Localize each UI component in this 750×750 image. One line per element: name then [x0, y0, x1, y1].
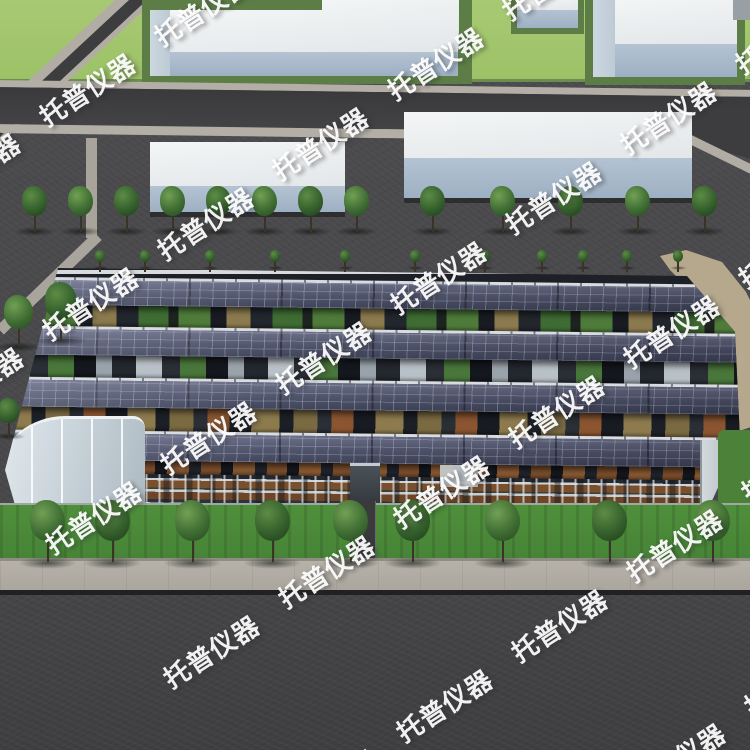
tree [95, 500, 130, 568]
tree-canopy [485, 500, 520, 541]
tree-canopy [30, 500, 65, 541]
tree-trunk [192, 539, 194, 562]
tree [537, 250, 547, 270]
tree [592, 500, 627, 568]
tree-canopy [0, 398, 19, 423]
tree-trunk [80, 214, 82, 232]
tree [692, 186, 717, 235]
tree [270, 250, 280, 270]
tree-canopy [95, 500, 130, 541]
tree-trunk [412, 539, 414, 562]
tree-canopy [175, 500, 210, 541]
tree-canopy [22, 186, 47, 216]
tree [255, 500, 290, 568]
tree-trunk [637, 214, 639, 232]
tree-canopy [4, 295, 33, 329]
tree-trunk [350, 539, 352, 562]
tree [160, 186, 185, 235]
tree-canopy [206, 186, 231, 216]
tree [95, 250, 105, 270]
tree-trunk [34, 214, 36, 232]
tree [45, 282, 77, 345]
tree-canopy [410, 250, 420, 262]
tree [344, 186, 369, 235]
tree-trunk [112, 539, 114, 562]
tree-trunk [8, 421, 10, 438]
tree [673, 250, 683, 270]
tree [114, 186, 139, 235]
tree [68, 186, 93, 235]
tree-trunk [60, 318, 62, 340]
tree [395, 500, 430, 568]
tree-trunk [356, 214, 358, 232]
tree-canopy [95, 250, 105, 262]
tree [205, 250, 215, 270]
tree-canopy [45, 282, 77, 320]
tree [30, 500, 65, 568]
tree-shadow [0, 433, 26, 440]
tree [420, 186, 445, 235]
tree-trunk [218, 214, 220, 232]
tree-trunk [432, 214, 434, 232]
tree-canopy [395, 500, 430, 541]
tree-canopy [68, 186, 93, 216]
tree-trunk [47, 539, 49, 562]
tree-canopy [114, 186, 139, 216]
tree [252, 186, 277, 235]
tree-trunk [570, 214, 572, 232]
tree-canopy [255, 500, 290, 541]
tree-canopy [625, 186, 650, 216]
tree [206, 186, 231, 235]
tree [333, 500, 368, 568]
tree-canopy [205, 250, 215, 262]
tree-canopy [420, 186, 445, 216]
tree [140, 250, 150, 270]
tree-canopy [480, 250, 490, 262]
tree-canopy [333, 500, 368, 541]
tree-trunk [712, 539, 714, 562]
tree [410, 250, 420, 270]
tree-canopy [695, 500, 730, 541]
tree-trunk [310, 214, 312, 232]
tree-trunk [272, 539, 274, 562]
tree [4, 295, 33, 351]
tree-trunk [502, 214, 504, 232]
tree [695, 500, 730, 568]
tree [340, 250, 350, 270]
tree-canopy [692, 186, 717, 216]
tree-canopy [252, 186, 277, 216]
tree-canopy [344, 186, 369, 216]
rendered-scene: 托普仪器托普仪器托普仪器托普仪器托普仪器托普仪器托普仪器托普仪器托普仪器托普仪器… [0, 0, 750, 750]
tree [175, 500, 210, 568]
tree-trunk [502, 539, 504, 562]
tree [490, 186, 515, 235]
tree-canopy [270, 250, 280, 262]
tree-canopy [140, 250, 150, 262]
tree [298, 186, 323, 235]
tree-trunk [18, 327, 20, 347]
tree [558, 186, 583, 235]
tree-canopy [340, 250, 350, 262]
tree-canopy [578, 250, 588, 262]
tree-canopy [537, 250, 547, 262]
tree-canopy [490, 186, 515, 216]
tree-canopy [558, 186, 583, 216]
tree-canopy [622, 250, 632, 262]
tree-trunk [609, 539, 611, 562]
tree-canopy [673, 250, 683, 262]
tree [625, 186, 650, 235]
tree [485, 500, 520, 568]
tree-canopy [160, 186, 185, 216]
tree-canopy [298, 186, 323, 216]
tree [22, 186, 47, 235]
tree-trunk [704, 214, 706, 232]
tree-trunk [126, 214, 128, 232]
tree [578, 250, 588, 270]
tree-trunk [172, 214, 174, 232]
trees-layer [0, 0, 750, 750]
tree-trunk [264, 214, 266, 232]
tree-shadow [0, 342, 43, 352]
tree [480, 250, 490, 270]
tree-canopy [592, 500, 627, 541]
tree [622, 250, 632, 270]
tree [0, 398, 19, 439]
